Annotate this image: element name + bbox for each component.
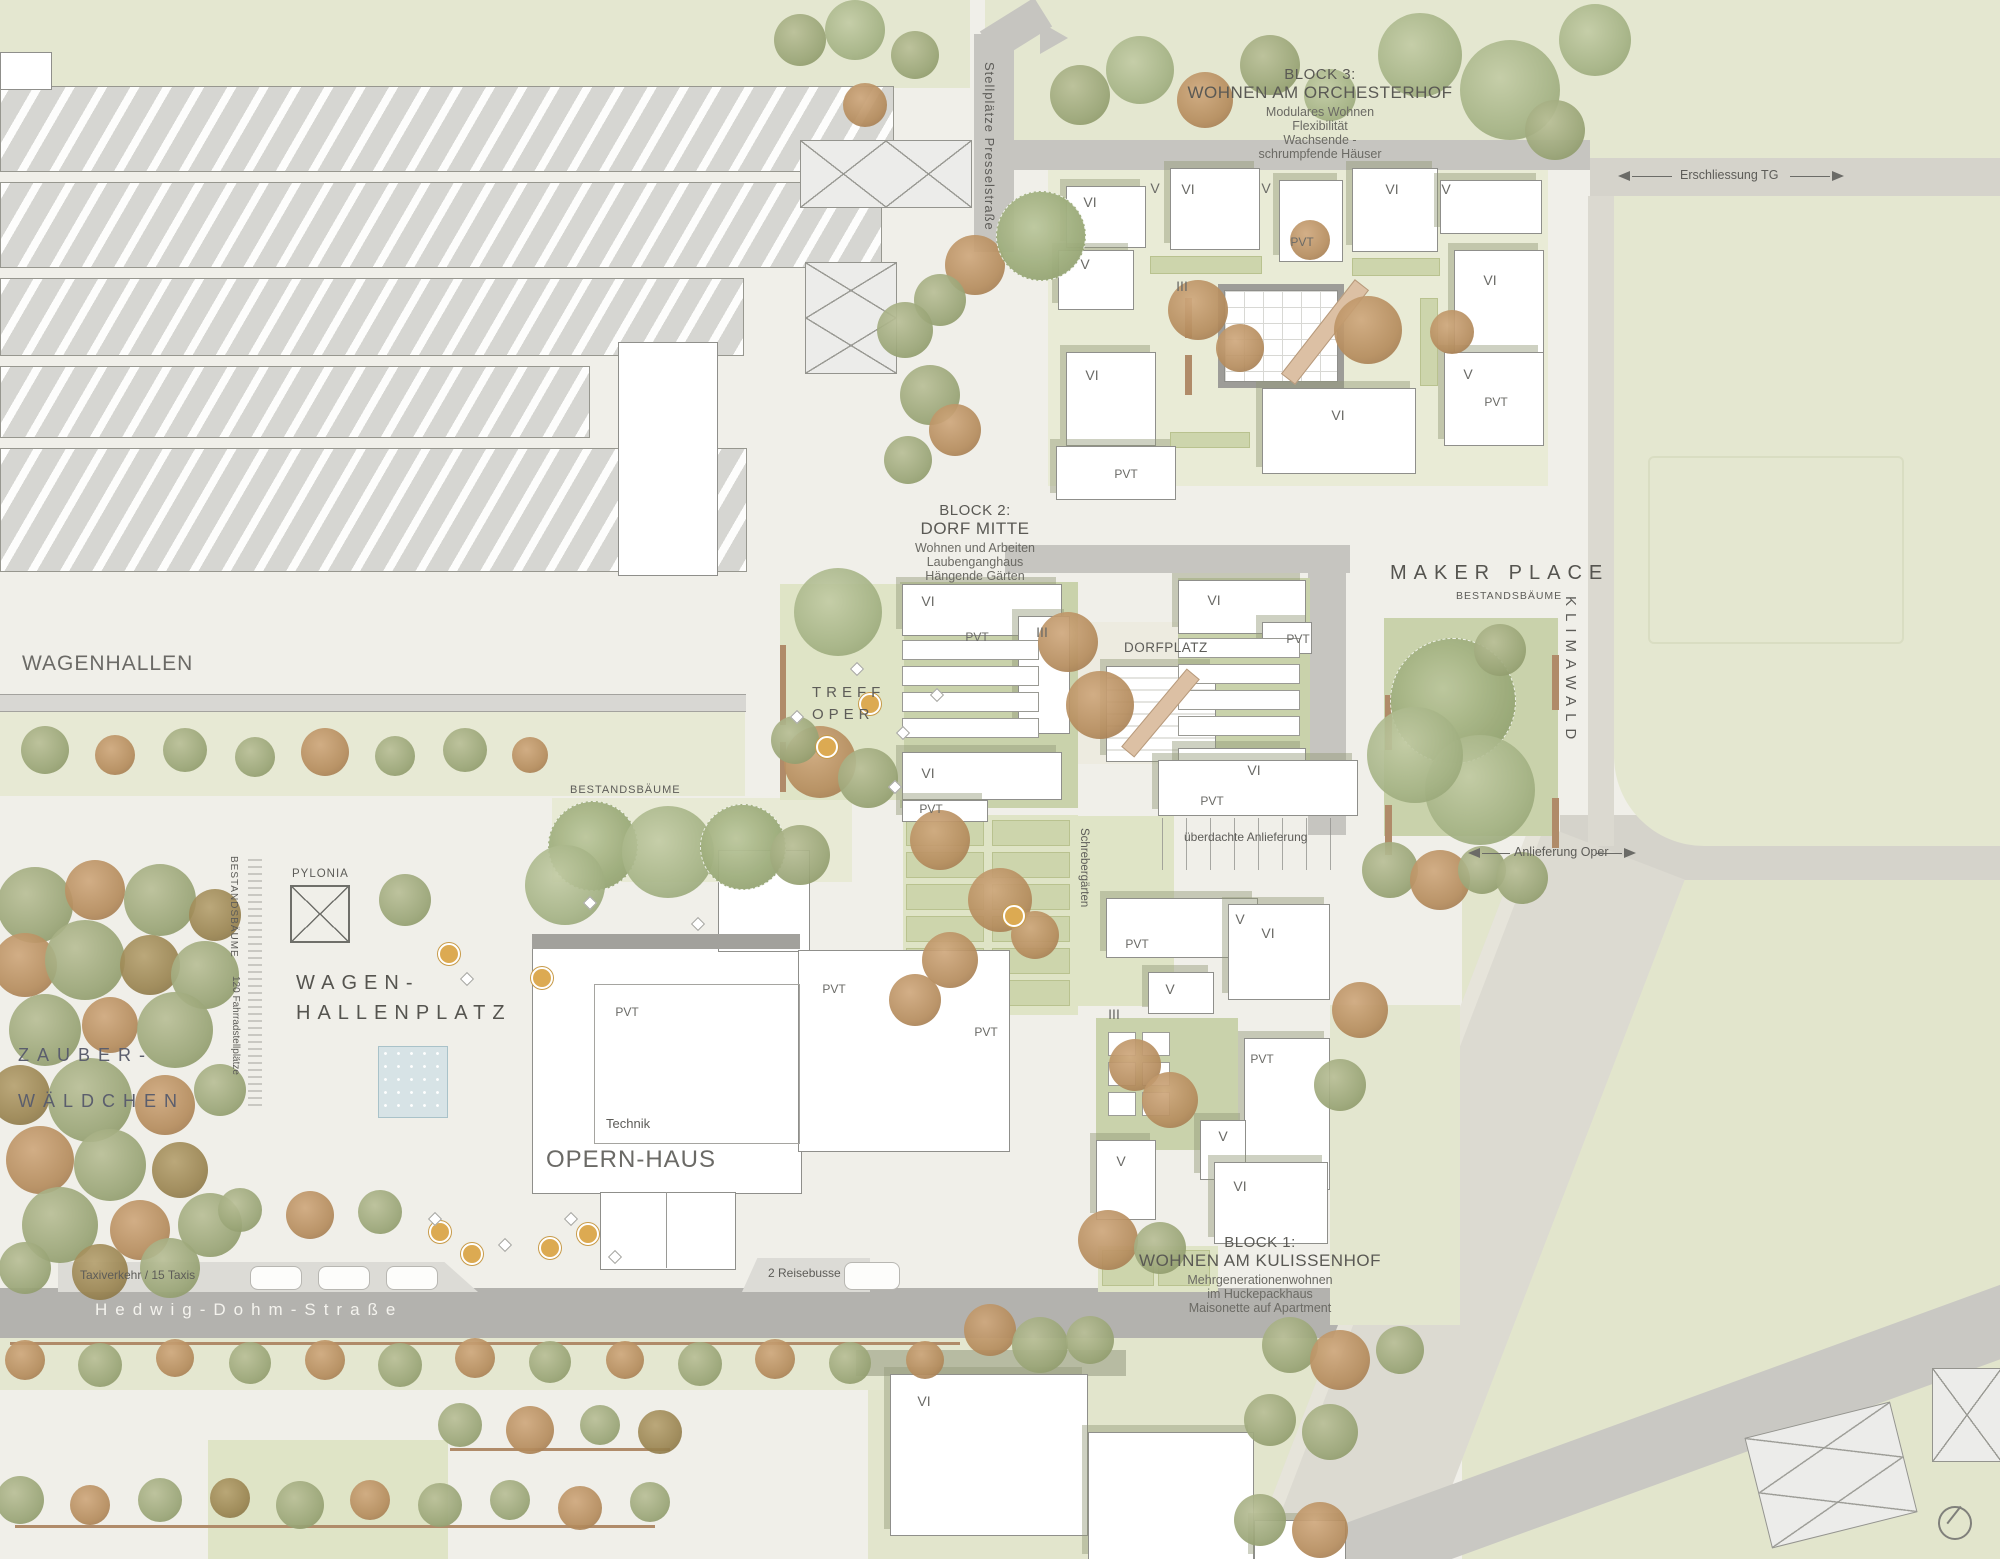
bike-racks: [248, 856, 262, 1106]
building-level-label: VI: [1181, 181, 1194, 197]
umbrella-table-icon: [577, 1223, 599, 1245]
block2-title: BLOCK 2: DORF MITTE Wohnen und Arbeiten …: [815, 502, 1135, 583]
building-level-label: VI: [917, 1393, 930, 1409]
tree-icon: [1525, 100, 1585, 160]
umbrella-table-icon: [1003, 905, 1025, 927]
rowhouse-strip: [902, 718, 1039, 738]
tree-icon: [379, 874, 431, 926]
zauber-line2: WÄLDCHEN: [18, 1078, 185, 1124]
tree-icon: [235, 737, 275, 777]
tree-icon: [5, 1340, 45, 1380]
erschliessung-tg-label: Erschliessung TG: [1680, 168, 1778, 182]
tree-icon: [906, 1341, 944, 1379]
building-level-label: PVT: [1125, 937, 1148, 951]
building-level-label: PVT: [965, 630, 988, 644]
rowhouse-strip: [1178, 690, 1300, 710]
reisebusse-label: 2 Reisebusse: [768, 1266, 841, 1280]
tree-icon: [1142, 1072, 1198, 1128]
tree-icon: [21, 726, 69, 774]
tree-icon: [218, 1188, 262, 1232]
building-level-label: PVT: [1290, 235, 1313, 249]
anlieferung-arrow-left-icon: [1468, 848, 1480, 858]
building-level-label: VI: [1331, 407, 1344, 423]
building: [1440, 180, 1542, 234]
taxi-label: Taxiverkehr / 15 Taxis: [80, 1268, 195, 1282]
tree-icon: [512, 737, 548, 773]
tg-line-left: [1632, 176, 1672, 177]
tree-icon: [506, 1406, 554, 1454]
tree-icon: [638, 1410, 682, 1454]
tree-icon: [1362, 842, 1418, 898]
building-level-label: V: [1261, 180, 1270, 196]
tg-arrow-right-icon: [1832, 171, 1844, 181]
tree-icon: [1376, 1326, 1424, 1374]
tree-icon: [884, 436, 932, 484]
block3-sub4: schrumpfende Häuser: [1160, 147, 1480, 161]
tree-icon: [378, 1343, 422, 1387]
building-level-label: VI: [1261, 925, 1274, 941]
technik-label: Technik: [606, 1116, 650, 1131]
tree-icon: [163, 728, 207, 772]
block1-title: BLOCK 1: WOHNEN AM KULISSENHOF Mehrgener…: [1100, 1234, 1420, 1315]
building: [1088, 1432, 1254, 1559]
bestandsbaeume-mitte-label: BESTANDSBÄUME: [570, 784, 681, 796]
tree-icon: [1314, 1059, 1366, 1111]
tree-icon: [1332, 982, 1388, 1038]
block2-name: DORF MITTE: [815, 519, 1135, 539]
wagenhallenplatz-line2: HALLENPLATZ: [296, 998, 512, 1028]
site-plan: WAGENHALLEN WAGEN- HALLENPLATZ ZAUBER- W…: [0, 0, 2000, 1559]
tree-icon: [529, 1341, 571, 1383]
corner-building-b: [1932, 1368, 2000, 1462]
dorfplatz-label: DORFPLATZ: [1124, 640, 1208, 655]
building-level-label: V: [1165, 981, 1174, 997]
tree-icon: [65, 860, 125, 920]
building-level-label: V: [1235, 911, 1244, 927]
tree-icon: [276, 1481, 324, 1529]
water-feature: [378, 1046, 448, 1118]
wagenhallenplatz-label: WAGEN- HALLENPLATZ: [296, 968, 512, 1028]
building: [1262, 388, 1416, 474]
wagenhallen-south-strip: [0, 694, 746, 712]
opera-parapet: [532, 934, 800, 949]
tree-icon: [0, 1476, 44, 1524]
tree-icon: [1012, 1317, 1068, 1373]
block3-garden-strip: [1150, 256, 1262, 274]
rowhouse-strip: [902, 692, 1039, 712]
hedge-bench: [450, 1448, 670, 1451]
parked-vehicle: [386, 1266, 438, 1290]
presselstrasse-label: Stellplätze Presselstraße: [982, 62, 997, 231]
zauberwaeldchen-label: ZAUBER- WÄLDCHEN: [18, 1032, 185, 1124]
block1-sub3: Maisonette auf Apartment: [1100, 1301, 1420, 1315]
presselstrasse-arrow-icon: [1040, 22, 1068, 54]
tree-icon: [1066, 1316, 1114, 1364]
tree-icon: [1038, 612, 1098, 672]
building-level-label: PVT: [615, 1005, 638, 1019]
tree-icon: [825, 0, 885, 60]
tg-line-right: [1790, 176, 1830, 177]
opera-lower-divider: [666, 1192, 667, 1268]
tree-icon: [838, 748, 898, 808]
north-arrow-icon: [1938, 1506, 1972, 1540]
building-level-label: V: [1150, 180, 1159, 196]
tree-icon: [74, 1129, 146, 1201]
tree-icon: [1216, 324, 1264, 372]
ueberdachte-anlieferung-label: überdachte Anlieferung: [1184, 830, 1307, 844]
seating-icon: [498, 1238, 512, 1252]
tree-icon: [910, 810, 970, 870]
fahrradstellplaetze-label: 120 Fahrradstellplätze: [230, 976, 241, 1075]
umbrella-table-icon: [461, 1243, 483, 1265]
tree-icon: [438, 1403, 482, 1447]
building: [1148, 972, 1214, 1014]
building-level-label: V: [1463, 366, 1472, 382]
building-level-label: VI: [1385, 181, 1398, 197]
tree-icon: [1302, 1404, 1358, 1460]
tree-icon: [770, 825, 830, 885]
tree-icon: [418, 1483, 462, 1527]
building-level-label: VI: [1247, 762, 1260, 778]
hedge-bench: [1185, 355, 1192, 395]
umbrella-table-icon: [438, 943, 460, 965]
tree-icon: [286, 1191, 334, 1239]
building: [1214, 1162, 1328, 1244]
tree-icon: [678, 1342, 722, 1386]
building-level-label: V: [1116, 1153, 1125, 1169]
tree-icon: [1310, 1330, 1370, 1390]
tree-icon: [375, 736, 415, 776]
building-level-label: VI: [1233, 1178, 1246, 1194]
tree-icon: [350, 1480, 390, 1520]
building: [1066, 352, 1156, 446]
wagenhallen-label: WAGENHALLEN: [22, 652, 193, 676]
tree-icon: [1430, 310, 1474, 354]
tree-icon: [138, 1478, 182, 1522]
zauber-line1: ZAUBER-: [18, 1032, 185, 1078]
tree-icon: [1559, 4, 1631, 76]
treffoper-label: TREFF OPER: [812, 682, 885, 726]
road-field-west: [1588, 196, 1614, 846]
tree-icon: [829, 1342, 871, 1384]
tree-icon: [301, 728, 349, 776]
building-level-label: PVT: [1286, 632, 1309, 646]
anlieferung-arrow-right-icon: [1624, 848, 1636, 858]
tree-icon: [210, 1478, 250, 1518]
block3-title-line: BLOCK 3:: [1160, 66, 1480, 83]
building-level-label: V: [1218, 1128, 1227, 1144]
building-level-label: PVT: [974, 1025, 997, 1039]
tree-icon: [877, 302, 933, 358]
schrebergaerten-label: Schrebergärten: [1078, 828, 1090, 907]
tree-icon: [78, 1343, 122, 1387]
building: [1096, 1140, 1156, 1220]
hedwig-dohm-label: Hedwig-Dohm-Straße: [95, 1300, 403, 1320]
building-level-label: III: [1036, 624, 1048, 640]
hedge-bench: [1552, 798, 1559, 848]
block2-sub1: Wohnen und Arbeiten: [815, 541, 1135, 555]
tree-icon: [490, 1480, 530, 1520]
building-level-label: PVT: [1200, 794, 1223, 808]
tree-icon: [1244, 1394, 1296, 1446]
building-level-label: PVT: [1114, 467, 1137, 481]
umbrella-table-icon: [539, 1237, 561, 1259]
tree-icon: [229, 1342, 271, 1384]
bestandsbaeume-maker-label: BESTANDSBÄUME: [1456, 590, 1562, 602]
tree-icon: [996, 191, 1086, 281]
block2-title-line: BLOCK 2:: [815, 502, 1135, 519]
tree-icon: [0, 1242, 51, 1294]
tree-icon: [124, 864, 196, 936]
parked-vehicle: [318, 1266, 370, 1290]
tree-icon: [45, 920, 125, 1000]
tree-icon: [1050, 65, 1110, 125]
pylonia-marker: [290, 885, 350, 943]
tree-icon: [891, 31, 939, 79]
building-level-label: VI: [921, 765, 934, 781]
building-level-label: PVT: [822, 982, 845, 996]
tree-icon: [606, 1341, 644, 1379]
building-level-label: PVT: [919, 802, 942, 816]
block3-garden-strip: [1170, 432, 1250, 448]
tree-icon: [1066, 671, 1134, 739]
small-building-nw: [0, 52, 52, 90]
building-level-label: III: [1176, 278, 1188, 294]
tree-icon: [774, 14, 826, 66]
pylonia-label: PYLONIA: [292, 868, 349, 880]
anlieferung-oper-label: Anlieferung Oper: [1514, 845, 1609, 859]
tree-icon: [6, 1126, 74, 1194]
block3-sub2: Flexibilität: [1160, 119, 1480, 133]
block3-name: WOHNEN AM ORCHESTERHOF: [1160, 83, 1480, 103]
building-level-label: V: [1080, 256, 1089, 272]
tree-icon: [630, 1482, 670, 1522]
block1-title-line: BLOCK 1:: [1100, 1234, 1420, 1251]
building-level-label: VI: [1483, 272, 1496, 288]
seating-icon: [691, 917, 705, 931]
tree-icon: [964, 1304, 1016, 1356]
road-erschliessung-tg: [1590, 158, 2000, 196]
block1-name: WOHNEN AM KULISSENHOF: [1100, 1251, 1420, 1271]
tree-icon: [455, 1338, 495, 1378]
tree-icon: [889, 974, 941, 1026]
courtyard-table: [1108, 1092, 1136, 1116]
covered-delivery-canopy: [1162, 818, 1348, 870]
block1-sub2: im Huckepackhaus: [1100, 1287, 1420, 1301]
block3-sub3: Wachsende -: [1160, 133, 1480, 147]
treff-line1: TREFF: [812, 682, 885, 704]
umbrella-table-icon: [816, 736, 838, 758]
tree-icon: [525, 845, 605, 925]
tree-icon: [843, 83, 887, 127]
rowhouse-strip: [1178, 716, 1300, 736]
tree-icon: [755, 1339, 795, 1379]
building-level-label: VI: [1207, 592, 1220, 608]
tree-icon: [558, 1486, 602, 1530]
block2-sub3: Hängende Gärten: [815, 569, 1135, 583]
tree-icon: [305, 1340, 345, 1380]
tree-icon: [1234, 1494, 1286, 1546]
hedge-bench: [15, 1525, 655, 1528]
hedge-bench: [1552, 655, 1559, 710]
building-level-label: PVT: [1484, 395, 1507, 409]
bestandsbaeume-platz-label: BESTANDSBÄUME: [228, 856, 239, 958]
umbrella-table-icon: [531, 967, 553, 989]
tree-icon: [95, 735, 135, 775]
block3-title: BLOCK 3: WOHNEN AM ORCHESTERHOF Modulare…: [1160, 66, 1480, 161]
tree-icon: [1474, 624, 1526, 676]
anlieferung-line-left: [1482, 853, 1510, 854]
makerplace-label: MAKER PLACE: [1390, 562, 1609, 585]
building-level-label: VI: [1085, 367, 1098, 383]
tree-icon: [443, 728, 487, 772]
existing-building-north-a: [800, 140, 972, 208]
tg-arrow-left-icon: [1618, 171, 1630, 181]
block3-sub1: Modulares Wohnen: [1160, 105, 1480, 119]
seating-icon: [564, 1212, 578, 1226]
building-level-label: PVT: [1250, 1052, 1273, 1066]
opernhaus-label: OPERN-HAUS: [546, 1146, 716, 1174]
tree-icon: [358, 1190, 402, 1234]
tree-icon: [929, 404, 981, 456]
tree-icon: [1496, 852, 1548, 904]
tree-icon: [1367, 707, 1463, 803]
parked-vehicle: [250, 1266, 302, 1290]
tree-icon: [70, 1485, 110, 1525]
parked-vehicle: [844, 1262, 900, 1290]
block3-garden-strip: [1352, 258, 1440, 276]
wagenhalle-white-slab: [618, 342, 718, 576]
garden-plot: [992, 820, 1070, 846]
tree-icon: [580, 1405, 620, 1445]
treff-line2: OPER: [812, 704, 885, 726]
klimawald-label: KLIMAWALD: [1562, 596, 1579, 746]
tree-icon: [1292, 1502, 1348, 1558]
tree-icon: [1334, 296, 1402, 364]
building-level-label: V: [1441, 181, 1450, 197]
rowhouse-strip: [902, 666, 1039, 686]
tree-icon: [120, 935, 180, 995]
wagenhallenplatz-line1: WAGEN-: [296, 968, 512, 998]
hedge-bench: [780, 645, 786, 725]
tree-icon: [156, 1339, 194, 1377]
building-level-label: VI: [1083, 194, 1096, 210]
block1-sub1: Mehrgenerationenwohnen: [1100, 1273, 1420, 1287]
block2-sub2: Laubenganghaus: [815, 555, 1135, 569]
building-level-label: III: [1108, 1006, 1120, 1022]
tree-icon: [152, 1142, 208, 1198]
building-level-label: VI: [921, 593, 934, 609]
